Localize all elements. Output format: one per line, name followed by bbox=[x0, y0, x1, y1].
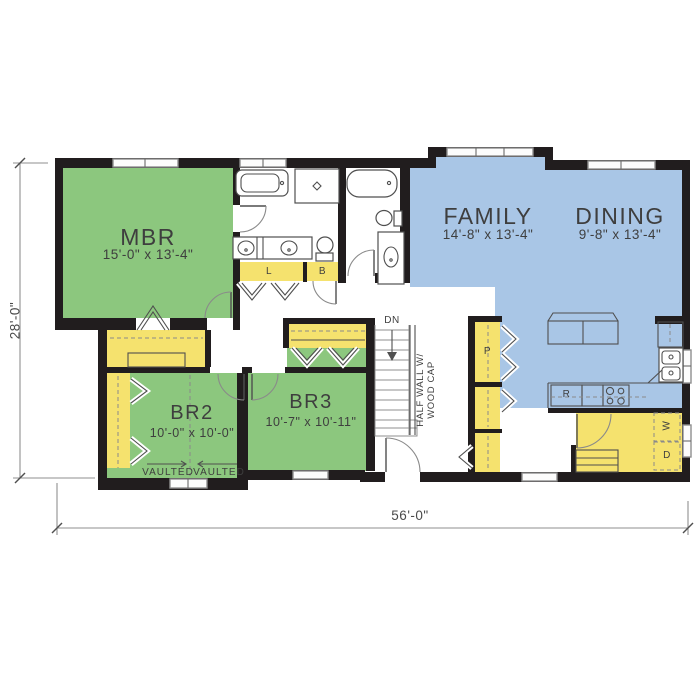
foyer-window bbox=[522, 473, 557, 481]
half-wall-note: HALF WALL W/ WOOD CAP bbox=[367, 330, 487, 450]
washer-label: W bbox=[662, 413, 673, 439]
dining-label: DINING bbox=[552, 203, 688, 230]
width-dimension: 56'-0" bbox=[340, 508, 480, 523]
mbr-dims: 15'-0" x 13'-4" bbox=[63, 247, 233, 262]
stairs-dn-label: DN bbox=[380, 315, 404, 326]
hall-bath-door bbox=[348, 250, 374, 276]
mbr-window bbox=[113, 159, 178, 167]
bath-closet-label: B bbox=[307, 266, 338, 277]
hall-toilet bbox=[376, 211, 392, 226]
laundry-door bbox=[577, 414, 611, 448]
br3-window bbox=[293, 471, 328, 479]
vaulted-label-right: VAULTED bbox=[189, 467, 249, 478]
br3-label: BR3 bbox=[251, 391, 371, 414]
bath-window bbox=[240, 159, 286, 167]
br2-dims: 10'-0" x 10'-0" bbox=[132, 426, 252, 440]
hall-toilet-tank bbox=[394, 211, 402, 226]
walkin-bifold bbox=[137, 306, 169, 330]
master-vanity bbox=[233, 237, 312, 259]
linen-bifold bbox=[238, 283, 299, 300]
kitchen-window bbox=[683, 350, 691, 383]
mbr-door bbox=[205, 292, 231, 318]
dining-dims: 9'-8" x 13'-4" bbox=[552, 227, 688, 242]
br3-dims: 10'-7" x 10'-11" bbox=[251, 415, 371, 429]
dryer-label: D bbox=[654, 450, 680, 461]
master-shower bbox=[295, 169, 339, 203]
br2-window bbox=[170, 479, 207, 488]
master-bath-fixtures bbox=[233, 169, 339, 261]
hall-closet-door bbox=[502, 390, 514, 412]
master-toilet bbox=[317, 237, 333, 253]
plan-linework bbox=[0, 0, 700, 700]
linen-closet-label: L bbox=[235, 266, 303, 277]
kitchen-island bbox=[548, 313, 618, 321]
basement-steps bbox=[576, 450, 618, 472]
master-bath-door bbox=[240, 206, 266, 232]
br3-closet-bifold bbox=[292, 348, 358, 365]
hall-vanity bbox=[378, 232, 404, 284]
family-window bbox=[447, 148, 533, 156]
floor-plan: MBR 15'-0" x 13'-4" FAMILY 14'-8" x 13'-… bbox=[0, 0, 700, 700]
refrigerator-label: R bbox=[551, 389, 582, 400]
bath-closet-door bbox=[313, 281, 336, 304]
depth-dimension: 28'-0" bbox=[8, 275, 23, 367]
walkin-dresser bbox=[128, 353, 185, 367]
hall-bath-fixtures bbox=[347, 170, 404, 284]
family-dims: 14'-8" x 13'-4" bbox=[408, 227, 568, 242]
br2-label: BR2 bbox=[132, 402, 252, 425]
range bbox=[603, 385, 629, 406]
family-label: FAMILY bbox=[408, 203, 568, 230]
pantry-bifold bbox=[502, 326, 516, 380]
dining-window bbox=[588, 161, 655, 169]
hall-tub bbox=[347, 170, 397, 197]
laundry-window bbox=[683, 425, 691, 457]
